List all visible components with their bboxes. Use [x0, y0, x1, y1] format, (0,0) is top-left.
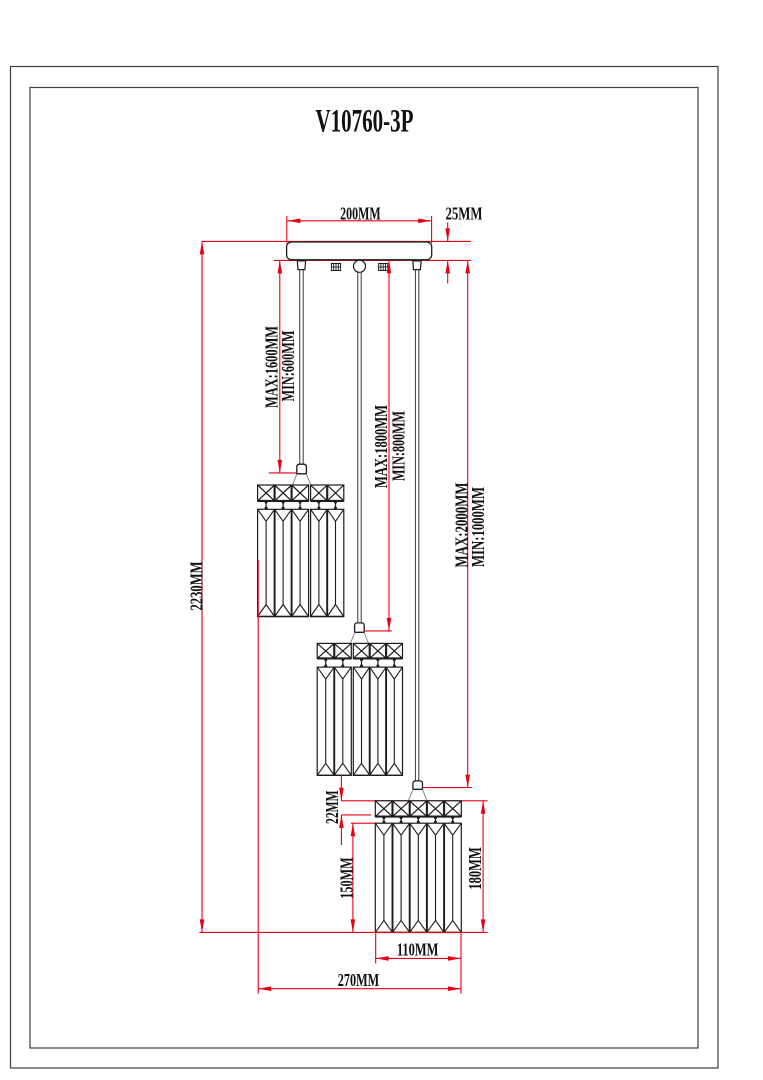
svg-text:25MM: 25MM	[446, 203, 483, 223]
svg-text:MIN:1000MM: MIN:1000MM	[468, 487, 488, 567]
svg-text:22MM: 22MM	[322, 790, 342, 824]
svg-text:180MM: 180MM	[465, 847, 485, 890]
svg-text:MIN:600MM: MIN:600MM	[278, 330, 298, 401]
svg-text:270MM: 270MM	[338, 970, 380, 990]
svg-text:150MM: 150MM	[336, 857, 356, 899]
svg-text:200MM: 200MM	[340, 203, 381, 223]
svg-text:2230MM: 2230MM	[186, 561, 206, 610]
svg-text:V10760-3P: V10760-3P	[316, 104, 414, 140]
svg-text:110MM: 110MM	[397, 940, 439, 960]
svg-text:MIN:800MM: MIN:800MM	[388, 411, 408, 481]
